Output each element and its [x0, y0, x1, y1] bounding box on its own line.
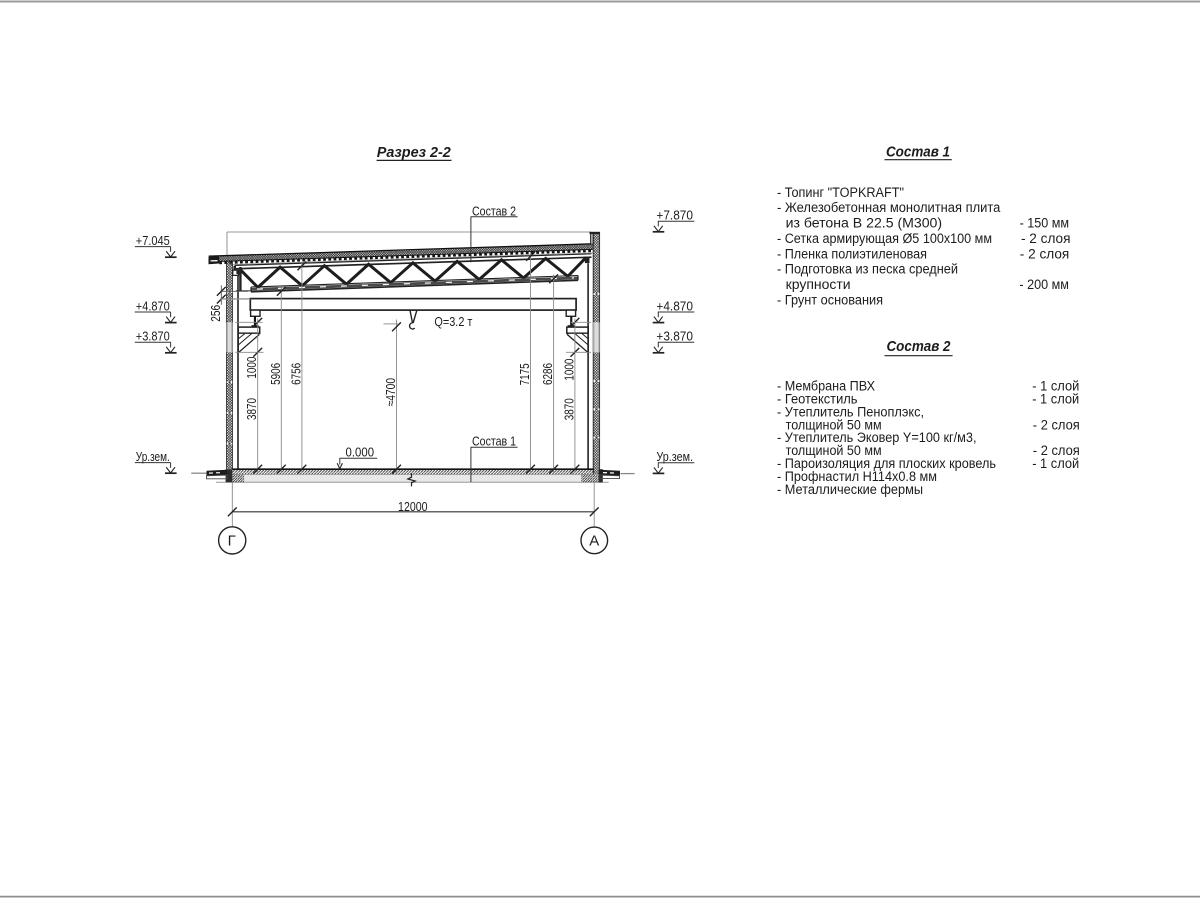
svg-text:- 1 слой: - 1 слой — [1032, 392, 1079, 407]
svg-text:6756: 6756 — [288, 363, 303, 385]
svg-text:из бетона В 22.5 (М300): из бетона В 22.5 (М300) — [786, 216, 943, 231]
svg-text:Состав 2: Состав 2 — [887, 338, 952, 355]
svg-text:- 2 слоя: - 2 слоя — [1033, 417, 1080, 432]
svg-text:Состав 1: Состав 1 — [886, 144, 950, 160]
svg-text:3870: 3870 — [561, 398, 576, 420]
svg-text:Ур.зем.: Ур.зем. — [656, 449, 693, 464]
svg-text:- Железобетонная монолитная п: - Железобетонная монолитная плита — [777, 200, 1001, 215]
svg-text:≈4700: ≈4700 — [383, 378, 398, 407]
svg-text:А: А — [589, 533, 599, 550]
svg-text:- 2 слоя: - 2 слоя — [1021, 231, 1071, 246]
svg-text:+4.870: +4.870 — [656, 298, 693, 313]
svg-text:12000: 12000 — [398, 499, 428, 514]
svg-text:- Пленка полиэтиленовая: - Пленка полиэтиленовая — [777, 246, 927, 261]
svg-text:Г: Г — [228, 533, 236, 550]
svg-text:6286: 6286 — [540, 363, 555, 385]
svg-text:7175: 7175 — [517, 363, 532, 385]
svg-text:+4.870: +4.870 — [136, 298, 170, 313]
svg-text:- 200 мм: - 200 мм — [1019, 277, 1069, 292]
svg-text:1000: 1000 — [561, 359, 576, 381]
svg-text:- Грунт основания: - Грунт основания — [777, 292, 883, 307]
svg-text:256: 256 — [208, 305, 223, 322]
svg-text:0.000: 0.000 — [346, 445, 375, 460]
svg-text:- Сетка армирующая Ø5 100х100: - Сетка армирующая Ø5 100х100 мм — [777, 231, 992, 246]
svg-text:+7.870: +7.870 — [656, 208, 693, 223]
svg-text:Q=3.2 т: Q=3.2 т — [434, 314, 472, 329]
svg-text:+3.870: +3.870 — [656, 329, 693, 344]
svg-text:Состав 1: Состав 1 — [472, 433, 516, 448]
svg-text:- Подготовка из песка средней: - Подготовка из песка средней — [777, 262, 958, 277]
svg-text:3870: 3870 — [244, 398, 259, 420]
svg-text:- 2 слоя: - 2 слоя — [1020, 246, 1070, 261]
svg-text:- Топинг "TOPKRAFT": - Топинг "TOPKRAFT" — [777, 185, 904, 200]
svg-text:1000: 1000 — [244, 357, 259, 379]
svg-text:5906: 5906 — [268, 363, 283, 385]
svg-text:- 1 слой: - 1 слой — [1032, 456, 1079, 471]
svg-text:- 150 мм: - 150 мм — [1020, 216, 1070, 231]
svg-text:Разрез 2-2: Разрез 2-2 — [377, 145, 451, 161]
svg-text:Ур.зем.: Ур.зем. — [136, 449, 170, 464]
svg-text:- Металлические фермы: - Металлические фермы — [777, 482, 923, 497]
svg-text:+7.045: +7.045 — [136, 233, 170, 248]
svg-text:Состав 2: Состав 2 — [472, 203, 516, 218]
svg-text:+3.870: +3.870 — [136, 329, 170, 344]
svg-text:крупности: крупности — [786, 277, 851, 292]
